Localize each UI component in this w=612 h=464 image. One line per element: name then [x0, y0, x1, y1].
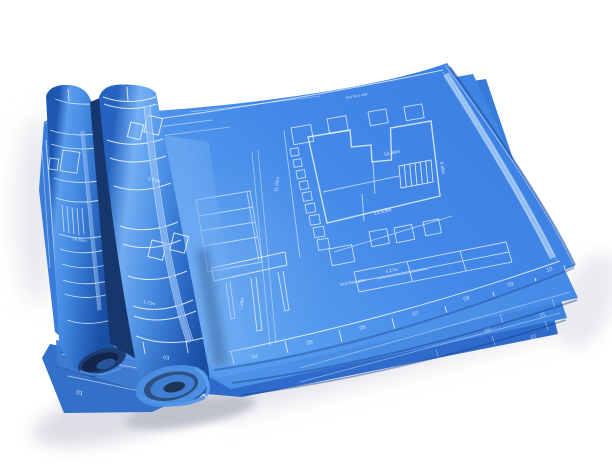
- svg-text:03: 03: [163, 355, 170, 362]
